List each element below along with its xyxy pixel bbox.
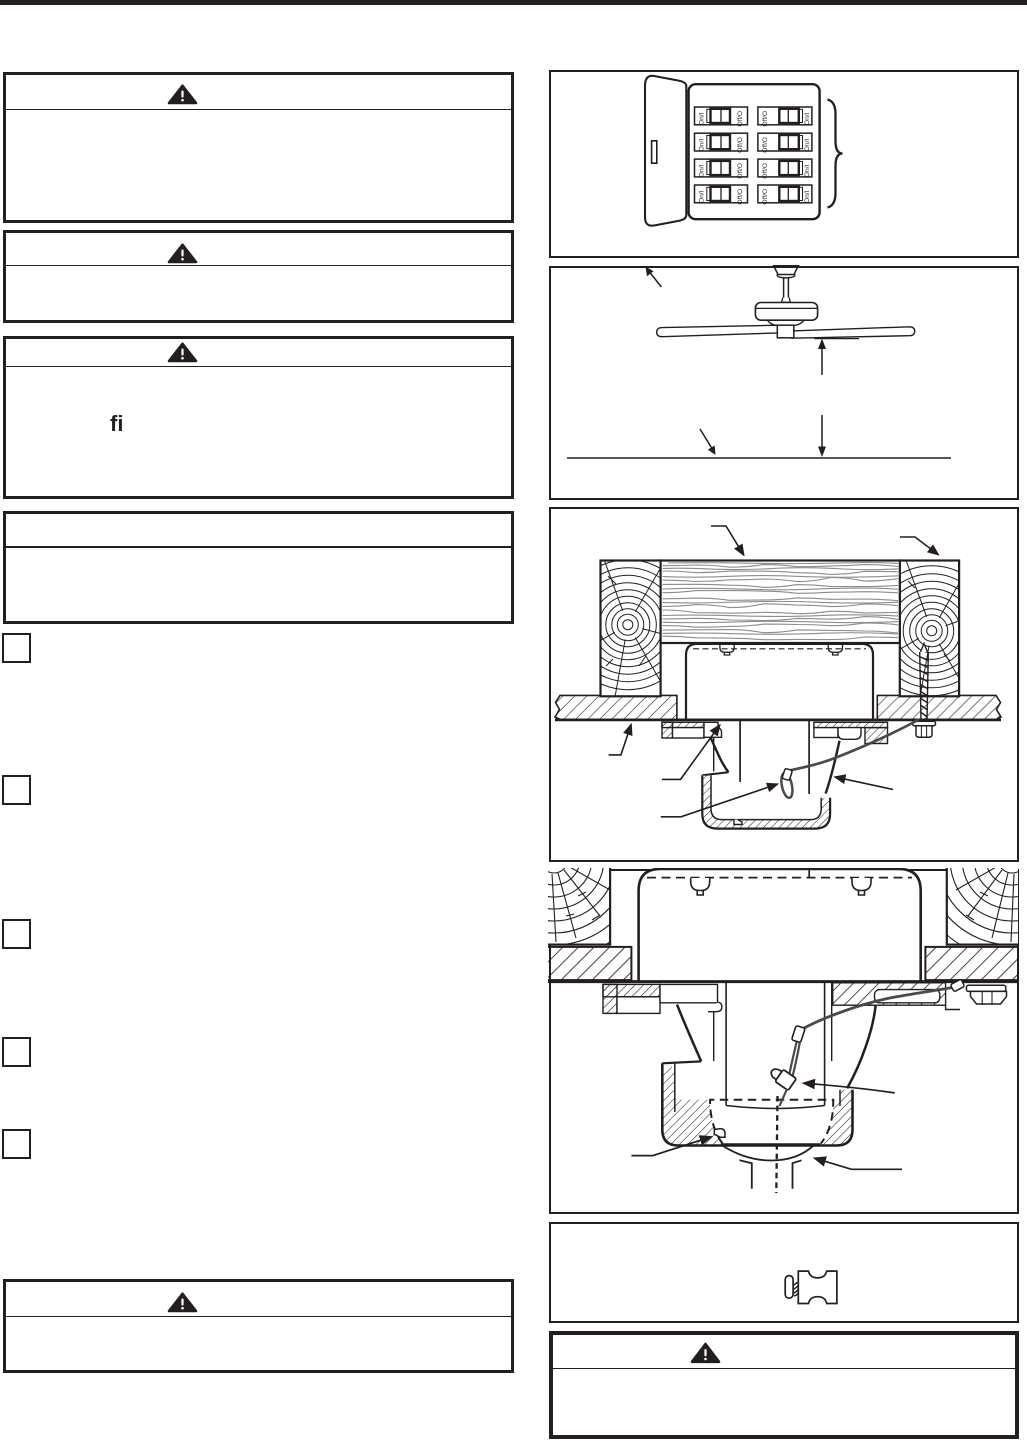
svg-text:On/I: On/I <box>804 112 811 125</box>
svg-text:On/I: On/I <box>699 190 706 203</box>
svg-text:On/I: On/I <box>804 138 811 151</box>
svg-text:On/I: On/I <box>804 190 811 203</box>
svg-text:Off/O: Off/O <box>762 111 769 127</box>
svg-text:On/I: On/I <box>699 138 706 151</box>
svg-text:Off/O: Off/O <box>762 137 769 153</box>
svg-text:On/I: On/I <box>699 112 706 125</box>
svg-text:Off/O: Off/O <box>737 163 744 179</box>
svg-text:Off/O: Off/O <box>762 189 769 205</box>
svg-text:Off/O: Off/O <box>762 163 769 179</box>
svg-text:On/I: On/I <box>804 164 811 177</box>
svg-text:Off/O: Off/O <box>737 189 744 205</box>
svg-text:Off/O: Off/O <box>737 111 744 127</box>
svg-text:Off/O: Off/O <box>737 137 744 153</box>
svg-text:On/I: On/I <box>699 164 706 177</box>
